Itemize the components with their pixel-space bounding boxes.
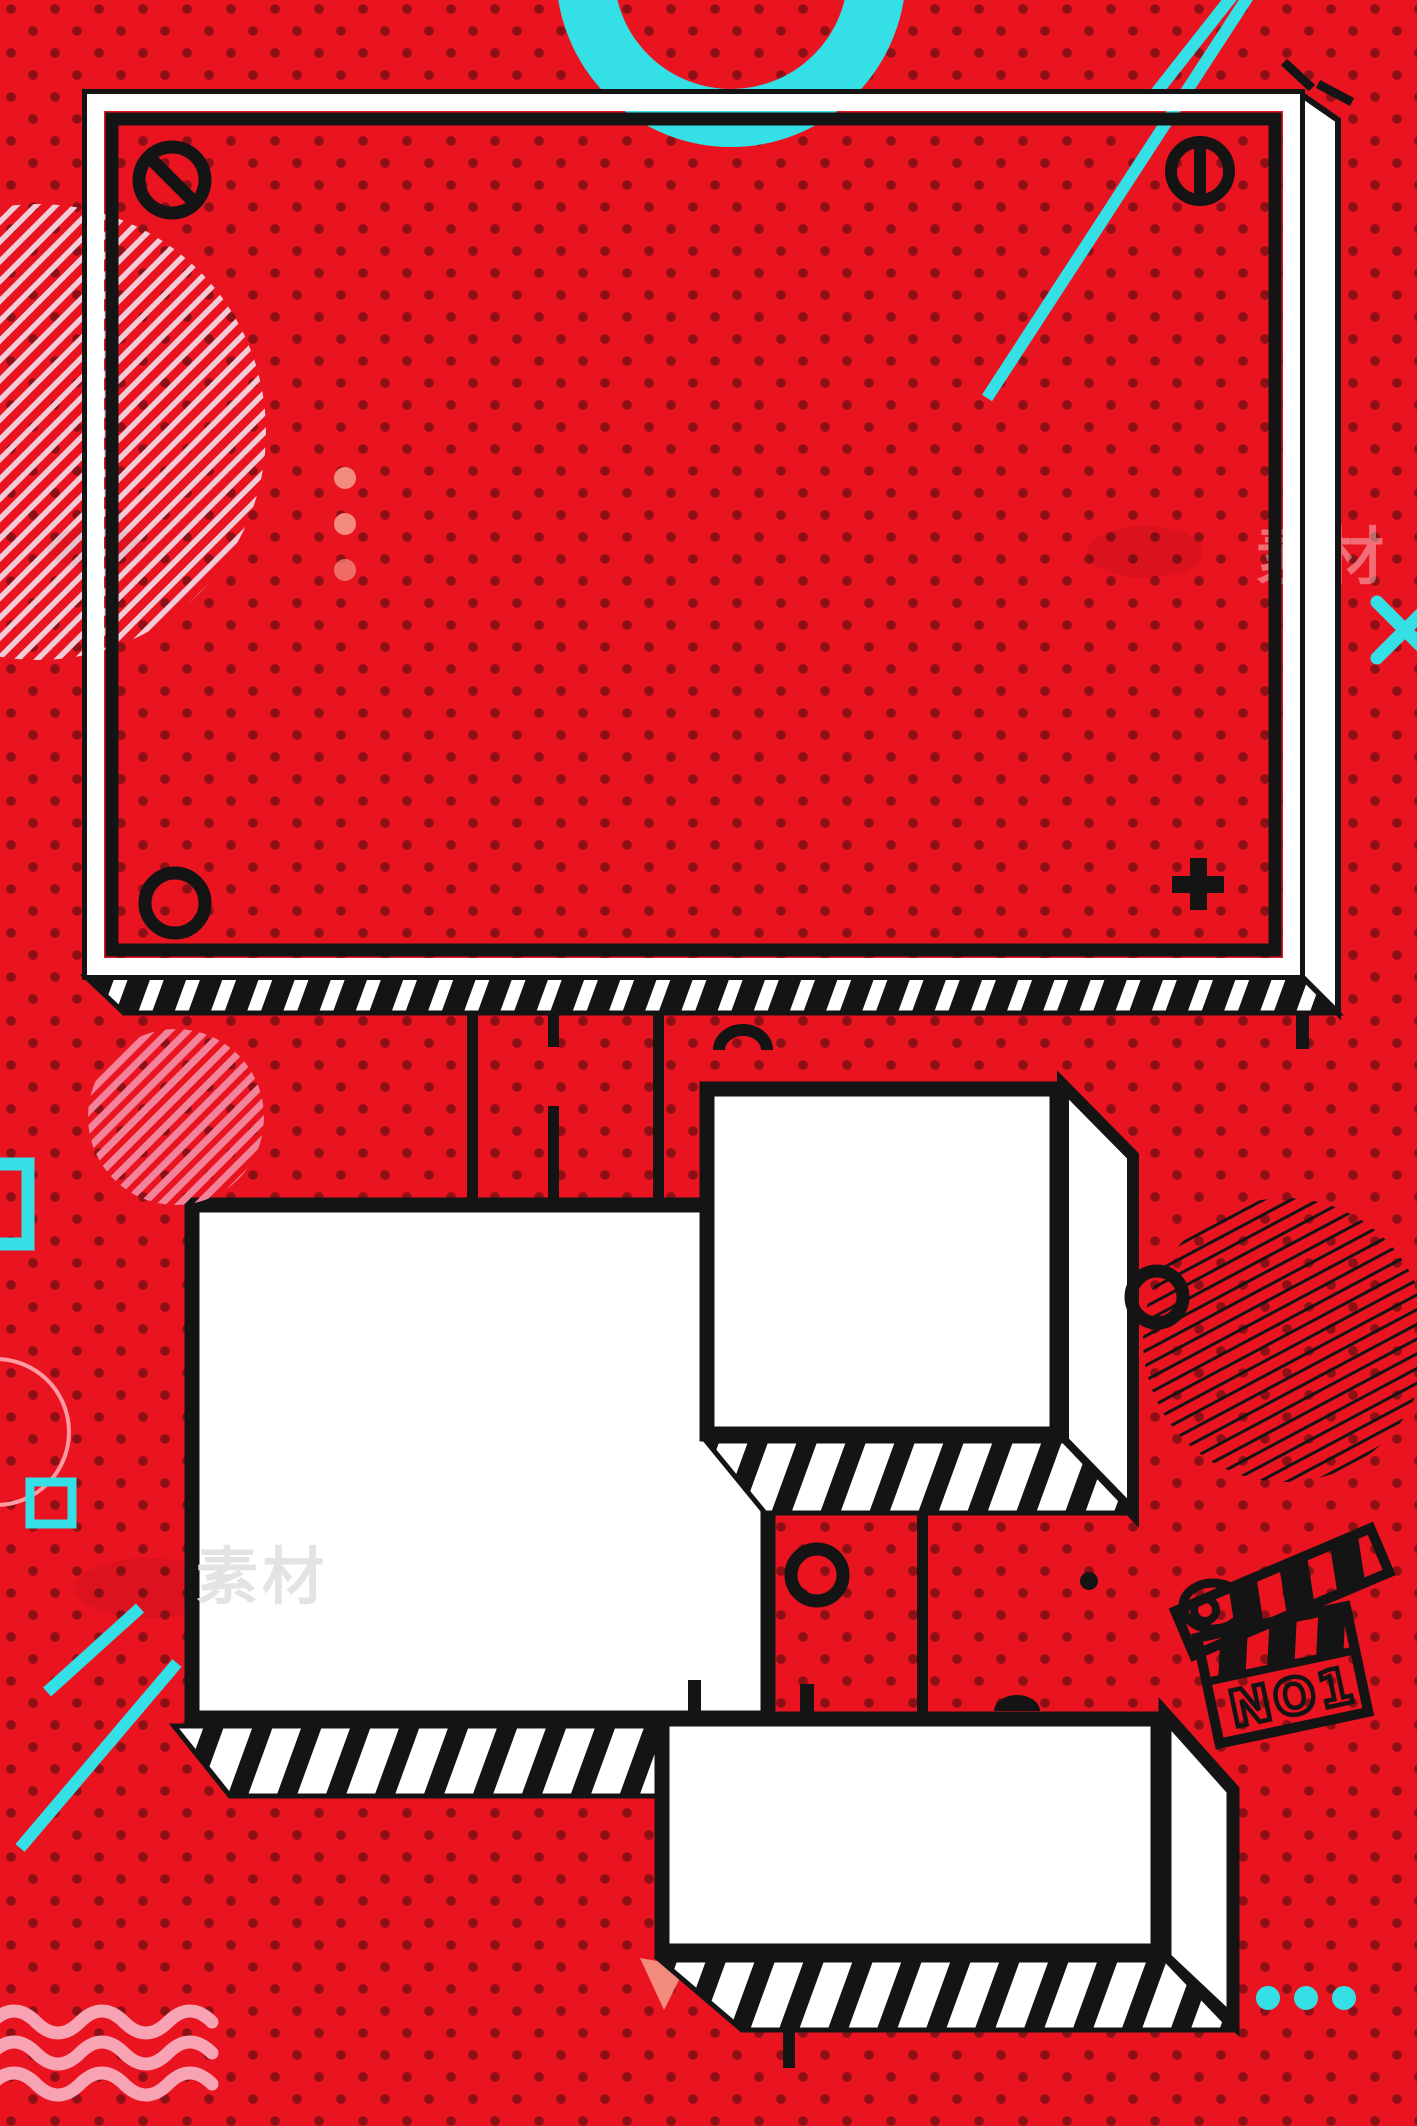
poster-art: 素材	[0, 0, 1417, 2126]
plus-screw-icon	[1172, 858, 1224, 910]
pink-dots-column	[334, 467, 356, 581]
left-white-box: 素材	[174, 1205, 768, 1796]
poster-stage: 素材	[0, 0, 1417, 2126]
plain-screw-icon	[145, 873, 205, 933]
bottom-white-box	[640, 1695, 1233, 2068]
middle-box-shadow-hatch	[706, 1441, 1133, 1513]
connector-lines	[467, 1013, 664, 1199]
panel-bottom-tick	[1296, 1013, 1309, 1049]
clapperboard-icon: NO1	[1175, 1528, 1389, 1743]
middle-white-box	[706, 1085, 1183, 1513]
cyan-x-icon	[1377, 602, 1417, 658]
bottom-box-shadow-hatch	[660, 1960, 1233, 2030]
pink-hatched-circle-top-left	[0, 204, 266, 660]
cyan-dots-row	[1256, 1986, 1356, 2010]
pink-hatched-circle-mid-left	[88, 1029, 264, 1205]
pink-wavy-lines	[0, 2011, 212, 2095]
slotted-screw-icon	[1171, 142, 1229, 200]
small-arc-doodle	[719, 1030, 767, 1050]
cyan-diagonal-lines-bottom-left	[20, 1608, 177, 1848]
panel-3d-side	[1302, 95, 1338, 1013]
semicircle-bump-doodle	[994, 1695, 1040, 1711]
watermark-left: 素材	[196, 1540, 328, 1613]
black-hatched-circle	[1143, 1198, 1417, 1482]
cyan-square-outline-large	[0, 1164, 28, 1244]
black-dot-doodle	[1080, 1572, 1098, 1590]
dash-doodle-c	[783, 2032, 795, 2068]
panel-3d-shadow-hatch	[86, 977, 1338, 1013]
dash-doodle-a	[800, 1684, 814, 1712]
cyan-square-outline-small	[30, 1482, 72, 1524]
connector-line-lower	[917, 1513, 928, 1712]
ring-doodle-left	[791, 1549, 843, 1601]
no-entry-screw-icon	[139, 147, 205, 213]
dash-doodle-b	[688, 1680, 701, 1712]
